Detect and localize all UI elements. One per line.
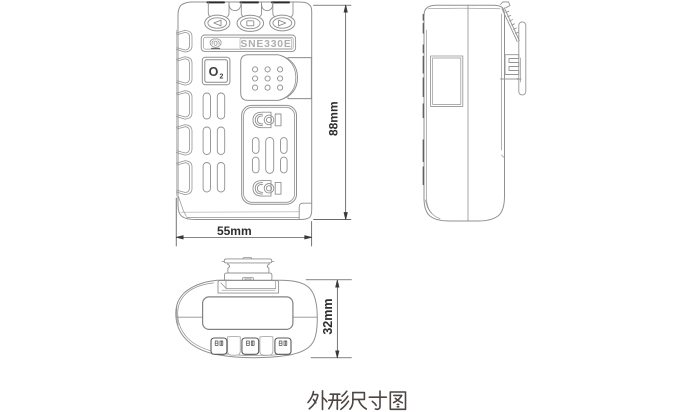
svg-text:O: O xyxy=(209,65,219,79)
svg-text:88mm: 88mm xyxy=(327,101,341,136)
svg-text:55mm: 55mm xyxy=(217,224,252,238)
svg-text:SNE330E: SNE330E xyxy=(240,39,291,50)
svg-text:2: 2 xyxy=(220,74,224,81)
svg-text:32mm: 32mm xyxy=(321,299,335,335)
